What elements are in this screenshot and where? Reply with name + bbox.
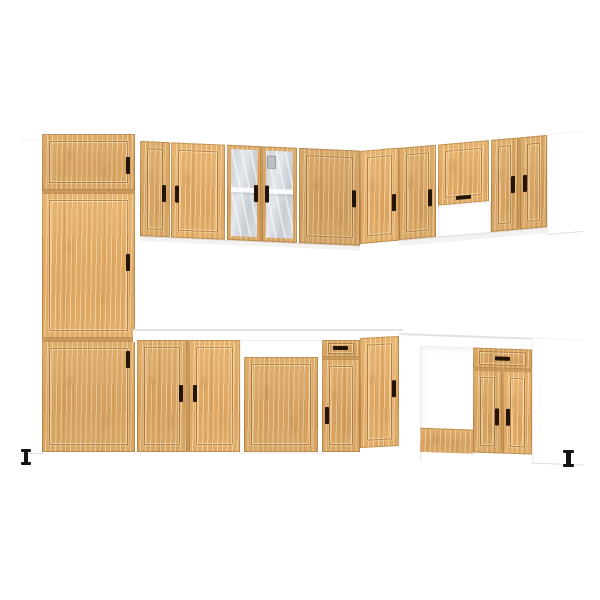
door-handle [193,385,197,402]
glass-door-left [227,145,261,241]
base-plinth-right [473,453,532,461]
wall-cabinet-door [299,148,360,246]
kitchen-cabinet-set-image [0,0,600,600]
hood-flap-door [438,140,489,205]
base-door [322,359,360,452]
base-end-panel [532,338,584,466]
hinge-hardware [267,156,276,169]
two-door-wall-cabinet-right [491,135,547,232]
cabinet-foot-right [563,450,574,467]
corner-wall-door [360,148,399,244]
corner-filler-panel [399,345,421,461]
right-wall-cabinet-run [399,132,583,248]
foot-cap [21,462,31,465]
drawer-base-cabinet [322,340,360,452]
drawer-front [322,340,360,357]
base-door-right [189,340,240,452]
wall-door-right [520,135,547,229]
door-handle [456,195,471,200]
extractor-hood-cabinet [438,140,489,236]
wall-end-panel [547,131,584,235]
door-handle [392,380,396,397]
wall-door-left [491,138,518,232]
base-door-right [503,371,532,455]
drawer-handle [495,356,510,361]
door-handle [126,254,130,271]
appliance-bay-plinth [420,428,473,454]
tall-cabinet [42,134,135,452]
foot-stem [566,453,571,464]
door-handle [162,185,166,202]
corner-base-door [360,336,399,448]
two-door-base-cabinet [137,340,240,452]
tall-cabinet-top-door [42,134,135,190]
hood-recess-opening [438,201,491,237]
glass-door-right [262,146,297,243]
door-handle [352,190,356,207]
door-handle [523,175,527,192]
door-handle [495,408,499,425]
tall-cabinet-bottom-door [42,341,135,452]
base-door-left [473,370,502,454]
door-handle [254,185,258,202]
glass-wall-cabinet [227,145,297,243]
foot-cap [563,464,574,467]
door-handle [506,409,510,426]
base-door-left [137,340,187,452]
drawer-front [473,348,532,370]
door-handle [511,176,515,193]
wall-cabinet-door-narrow [140,141,170,237]
door-handle [392,194,396,211]
drawer-handle [333,346,348,350]
door-handle [126,351,130,368]
wall-cabinet-door-wide [171,142,225,239]
foot-stem [24,452,28,462]
open-appliance-bay [420,346,475,432]
door-handle [175,186,179,203]
wall-cabinet-door-right-run [399,145,436,240]
door-handle [325,407,329,424]
appliance-low-door [244,357,318,452]
right-base-cabinet-run [399,333,583,474]
tall-cabinet-middle-door [42,193,135,338]
door-handle [265,185,269,202]
door-handle [428,189,432,206]
drawer-base-cabinet-right [473,348,532,455]
cabinet-foot-left [21,449,31,465]
door-handle [126,157,130,174]
door-handle [179,385,183,402]
tall-cabinet-side-panel [20,139,43,454]
